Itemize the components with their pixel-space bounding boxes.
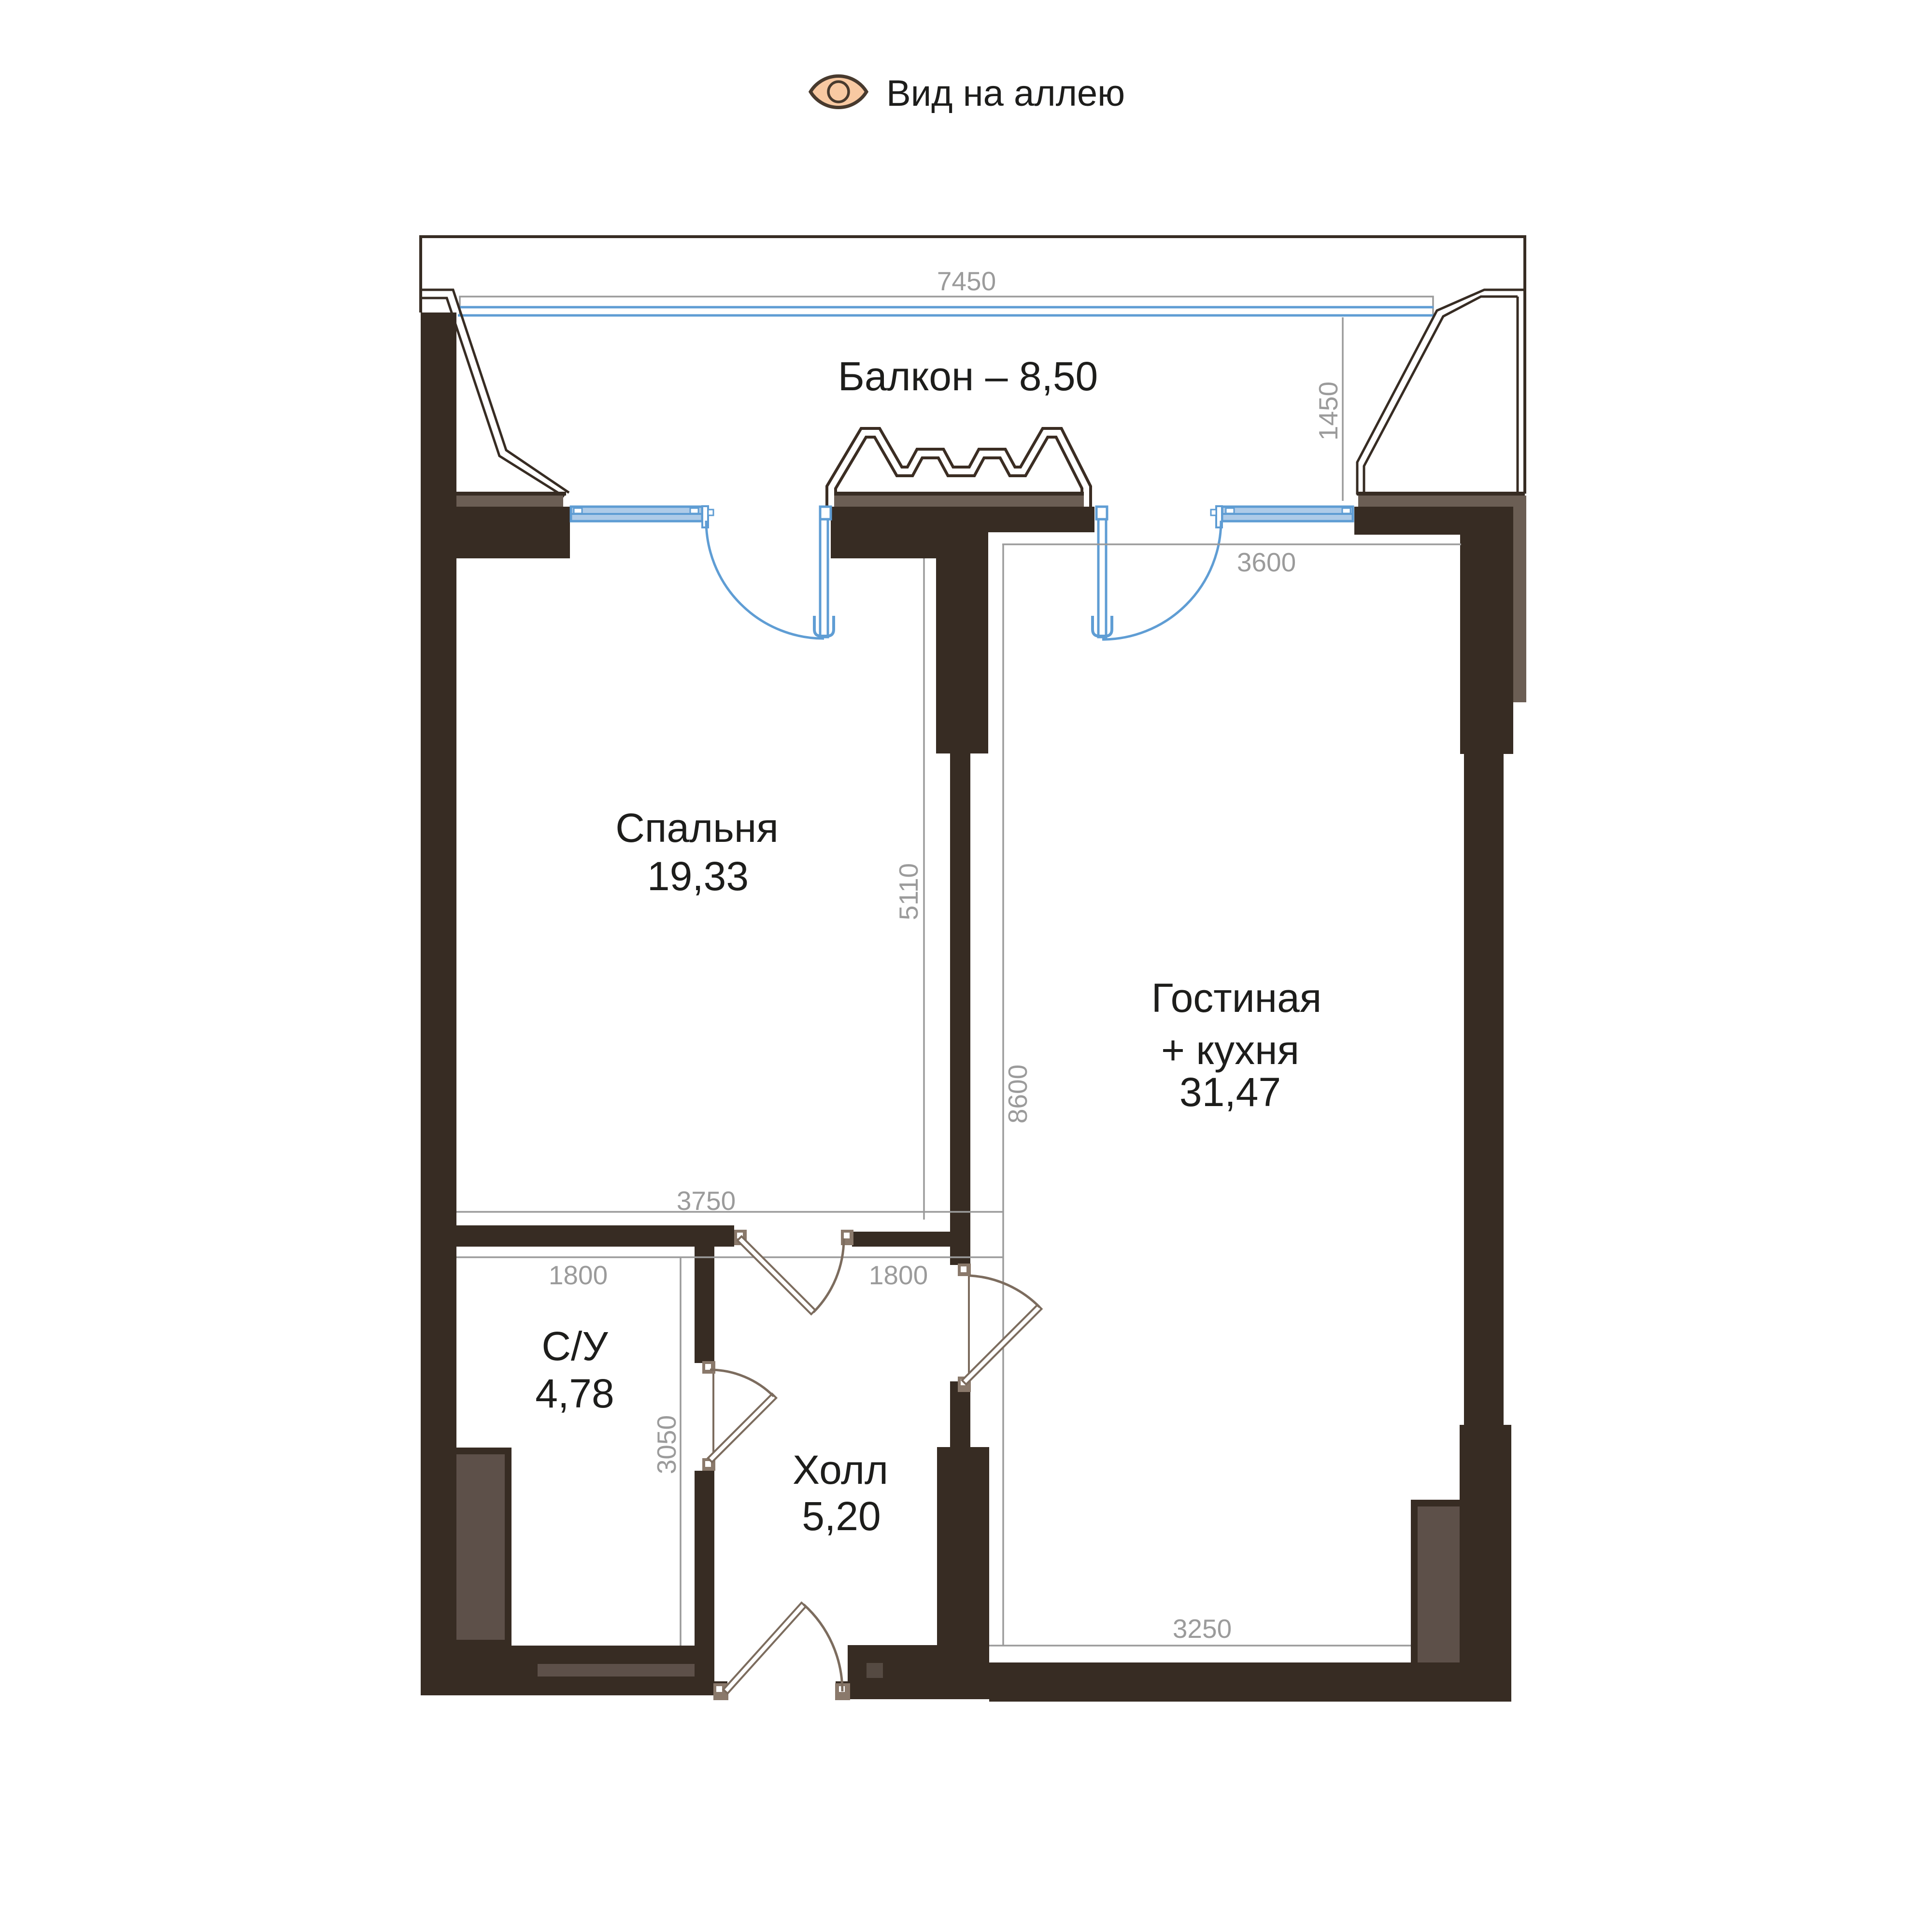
svg-text:31,47: 31,47 [1179,1069,1281,1115]
svg-text:4,78: 4,78 [535,1371,614,1416]
svg-text:Спальня: Спальня [615,805,779,851]
svg-text:Вид на аллею: Вид на аллею [886,73,1125,114]
svg-text:1450: 1450 [1313,382,1343,440]
svg-text:3050: 3050 [652,1415,682,1474]
svg-text:3750: 3750 [677,1186,736,1216]
svg-text:7450: 7450 [937,266,996,296]
svg-text:Холл: Холл [793,1447,888,1492]
svg-text:3600: 3600 [1237,547,1296,577]
svg-text:5,20: 5,20 [802,1493,881,1539]
svg-text:Балкон – 8,50: Балкон – 8,50 [838,354,1098,399]
svg-text:Гостиная: Гостиная [1151,975,1322,1021]
svg-text:+ кухня: + кухня [1161,1027,1299,1073]
svg-text:5110: 5110 [894,863,923,920]
svg-text:1800: 1800 [869,1260,928,1290]
svg-text:19,33: 19,33 [647,853,749,899]
svg-text:1800: 1800 [549,1260,608,1290]
svg-text:3250: 3250 [1173,1614,1232,1644]
svg-text:8600: 8600 [1003,1065,1033,1123]
svg-text:С/У: С/У [541,1323,608,1369]
